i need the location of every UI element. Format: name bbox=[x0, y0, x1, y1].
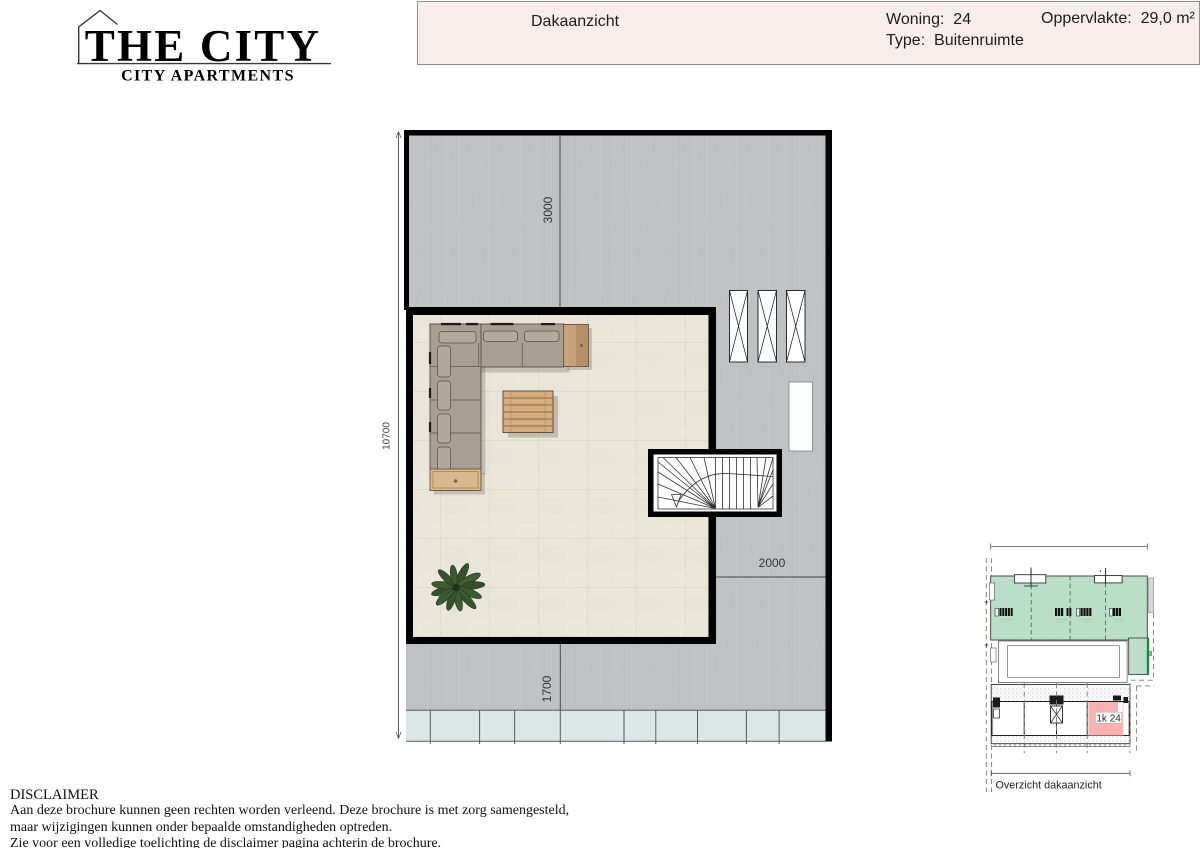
svg-text:1700: 1700 bbox=[540, 675, 554, 702]
svg-text:CITY APARTMENTS: CITY APARTMENTS bbox=[121, 68, 295, 85]
svg-text:3000: 3000 bbox=[541, 196, 555, 223]
svg-text:1k 24: 1k 24 bbox=[1096, 713, 1121, 724]
svg-text:THE CITY: THE CITY bbox=[85, 21, 321, 71]
svg-text:2000: 2000 bbox=[759, 556, 786, 570]
svg-text:Overzicht dakaanzicht: Overzicht dakaanzicht bbox=[996, 780, 1102, 792]
svg-text:10700: 10700 bbox=[382, 422, 393, 450]
